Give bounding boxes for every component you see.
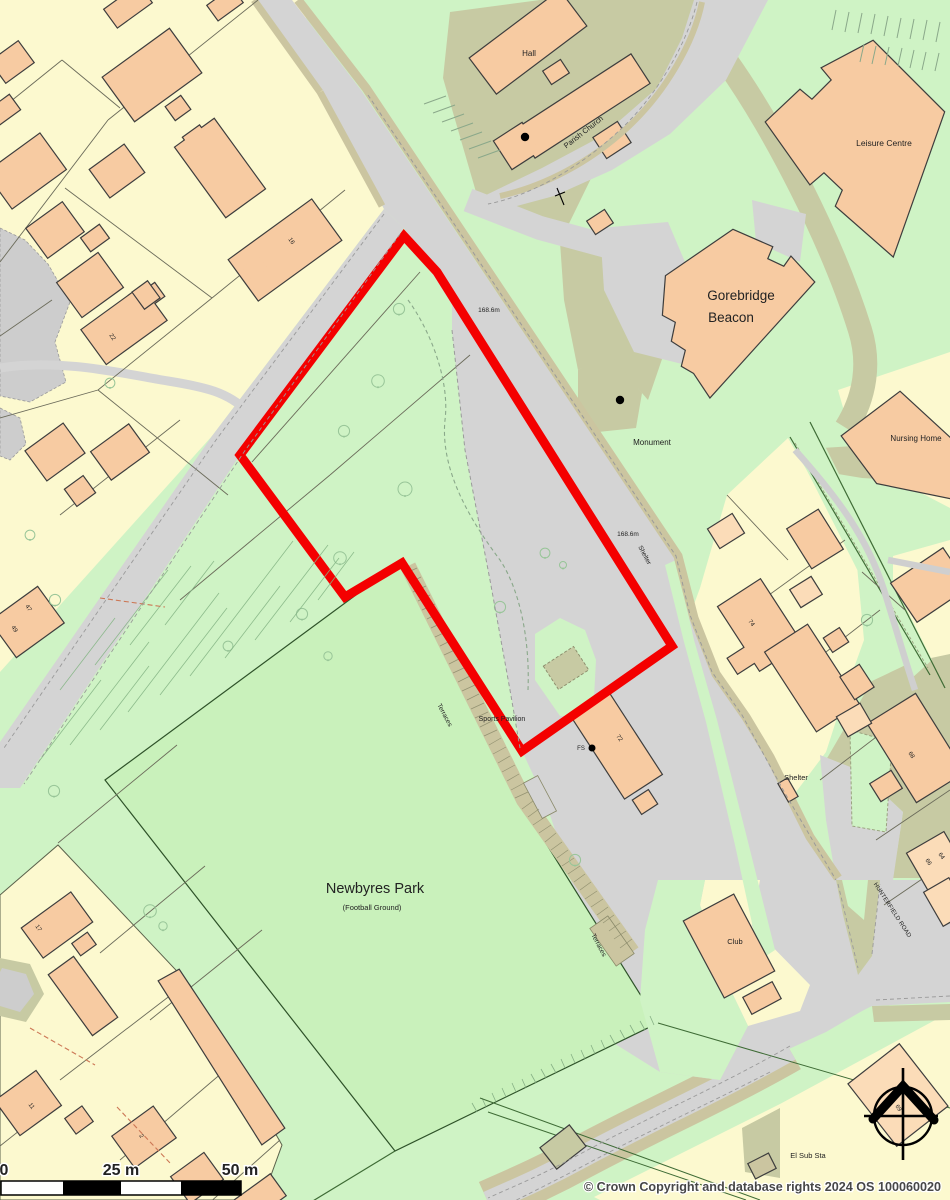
svg-text:Monument: Monument bbox=[633, 438, 672, 447]
svg-text:Beacon: Beacon bbox=[708, 310, 754, 325]
svg-text:Nursing Home: Nursing Home bbox=[890, 434, 942, 443]
svg-text:Gorebridge: Gorebridge bbox=[707, 288, 775, 303]
svg-text:El Sub Sta: El Sub Sta bbox=[790, 1151, 826, 1160]
svg-text:168.6m: 168.6m bbox=[617, 531, 639, 538]
svg-text:Hall: Hall bbox=[522, 49, 536, 58]
svg-text:Leisure Centre: Leisure Centre bbox=[856, 138, 912, 148]
svg-text:50 m: 50 m bbox=[222, 1162, 258, 1179]
svg-text:25 m: 25 m bbox=[103, 1162, 139, 1179]
svg-text:Newbyres Park: Newbyres Park bbox=[326, 881, 425, 897]
svg-text:© Crown Copyright and database: © Crown Copyright and database rights 20… bbox=[584, 1180, 941, 1194]
svg-text:Club: Club bbox=[727, 937, 742, 946]
svg-text:Shelter: Shelter bbox=[784, 773, 808, 782]
svg-text:Sports Pavilion: Sports Pavilion bbox=[479, 716, 526, 723]
svg-text:(Football Ground): (Football Ground) bbox=[343, 903, 402, 912]
svg-text:FS: FS bbox=[577, 746, 585, 752]
svg-text:0: 0 bbox=[0, 1162, 9, 1179]
svg-text:168.6m: 168.6m bbox=[478, 307, 500, 314]
